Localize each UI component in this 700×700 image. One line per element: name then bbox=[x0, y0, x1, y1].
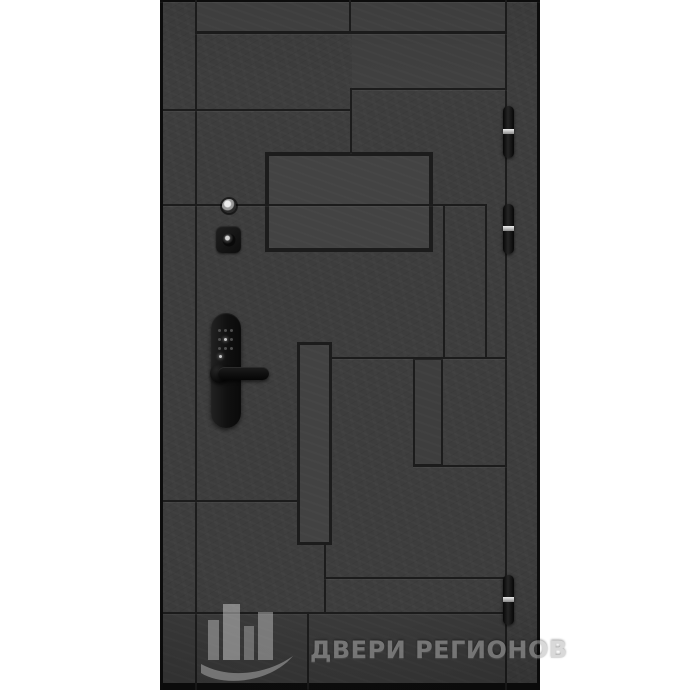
hinge-layer bbox=[160, 0, 540, 690]
door-hinge-middle bbox=[503, 204, 514, 254]
door-hinge-top bbox=[503, 106, 514, 158]
hinge-highlight-band bbox=[503, 226, 514, 231]
hinge-highlight-band bbox=[503, 597, 514, 602]
product-photo-canvas: ДВЕРИ РЕГИОНОВ bbox=[0, 0, 700, 700]
hinge-highlight-band bbox=[503, 129, 514, 134]
door-photo: ДВЕРИ РЕГИОНОВ bbox=[160, 0, 540, 690]
door-hinge-bottom bbox=[503, 575, 514, 625]
